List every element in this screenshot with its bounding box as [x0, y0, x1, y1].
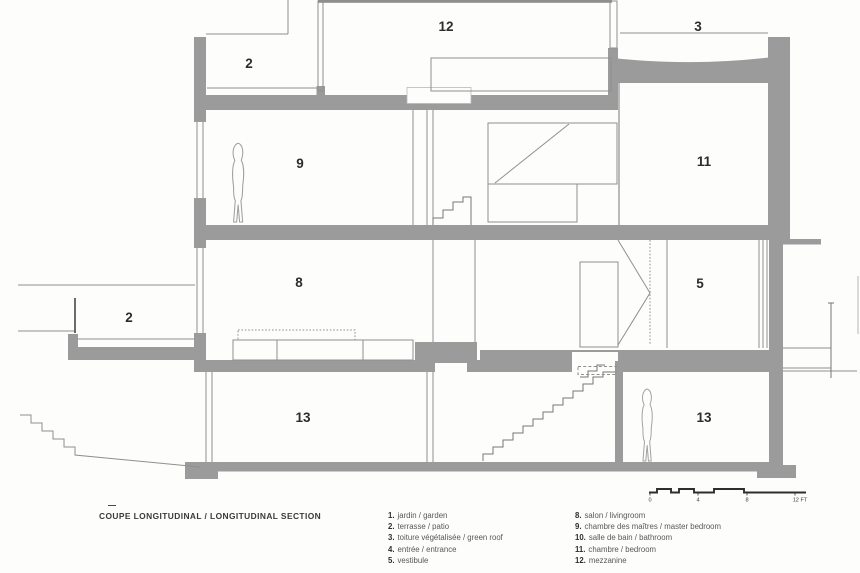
legend-item: 2.terrasse / patio: [388, 521, 503, 532]
building-section-svg: 2 12 3 9 11 8 5 2 13 13 0 4 8 12 FT: [0, 0, 860, 573]
legend-item-label: toiture végétalisée / green roof: [398, 533, 503, 542]
legend-item: 1.jardin / garden: [388, 510, 503, 521]
scale-tick-0: 0: [648, 498, 651, 504]
room-label-terrace-lower: 2: [125, 310, 133, 325]
legend-item-label: terrasse / patio: [398, 522, 450, 531]
walls-and-slabs: [68, 0, 821, 479]
room-label-terrace-upper: 2: [245, 56, 253, 71]
room-label-mezzanine: 12: [438, 19, 453, 34]
legend-item-number: 2.: [388, 522, 395, 531]
legend-item-label: entrée / entrance: [398, 545, 457, 554]
legend-column-left: 1.jardin / garden 2.terrasse / patio 3.t…: [388, 510, 503, 566]
legend-item-number: 5.: [388, 556, 395, 565]
drawing-title: COUPE LONGITUDINAL / LONGITUDINAL SECTIO…: [99, 511, 321, 521]
legend-item-number: 12.: [575, 556, 586, 565]
scale-bar: 0 4 8 12 FT: [648, 489, 807, 504]
room-label-livingroom: 8: [295, 275, 303, 290]
architectural-section-sheet: 2 12 3 9 11 8 5 2 13 13 0 4 8 12 FT COUP…: [0, 0, 860, 573]
person-silhouette-basement: [642, 389, 652, 461]
scale-tick-8: 8: [745, 498, 748, 504]
legend-item: 10.salle de bain / bathroom: [575, 532, 721, 543]
legend-item-number: 4.: [388, 545, 395, 554]
legend-item: 5.vestibule: [388, 555, 503, 566]
room-label-basement-right: 13: [696, 410, 712, 425]
room-label-basement-left: 13: [295, 410, 311, 425]
legend-item-label: salon / livingroom: [585, 511, 646, 520]
legend-item-number: 8.: [575, 511, 582, 520]
legend-item-label: mezzanine: [589, 556, 627, 565]
legend-item-label: jardin / garden: [398, 511, 448, 520]
legend-item-number: 11.: [575, 545, 585, 554]
caption-overline-mark: [108, 505, 116, 506]
legend-item: 11.chambre / bedroom: [575, 544, 721, 555]
legend-item-label: salle de bain / bathroom: [589, 533, 672, 542]
legend-item-number: 1.: [388, 511, 395, 520]
sofa: [233, 330, 413, 360]
legend-item-number: 10.: [575, 533, 586, 542]
legend-item: 4.entrée / entrance: [388, 544, 503, 555]
room-label-bedroom: 11: [697, 154, 712, 169]
scale-tick-4: 4: [696, 498, 699, 504]
legend-item-label: chambre / bedroom: [588, 545, 656, 554]
legend-item: 3.toiture végétalisée / green roof: [388, 532, 503, 543]
person-silhouette-bedroom: [233, 143, 244, 222]
room-label-master-bedroom: 9: [296, 156, 304, 171]
room-label-vestibule: 5: [696, 276, 704, 291]
legend-item-number: 9.: [575, 522, 582, 531]
legend-item: 8.salon / livingroom: [575, 510, 721, 521]
legend-item-label: vestibule: [398, 556, 429, 565]
legend-item-label: chambre des maîtres / master bedroom: [585, 522, 722, 531]
legend-item: 12.mezzanine: [575, 555, 721, 566]
room-label-green-roof: 3: [694, 19, 702, 34]
legend-item: 9.chambre des maîtres / master bedroom: [575, 521, 721, 532]
scale-tick-12ft: 12 FT: [793, 498, 808, 504]
legend-item-number: 3.: [388, 533, 395, 542]
legend-column-right: 8.salon / livingroom 9.chambre des maîtr…: [575, 510, 721, 566]
